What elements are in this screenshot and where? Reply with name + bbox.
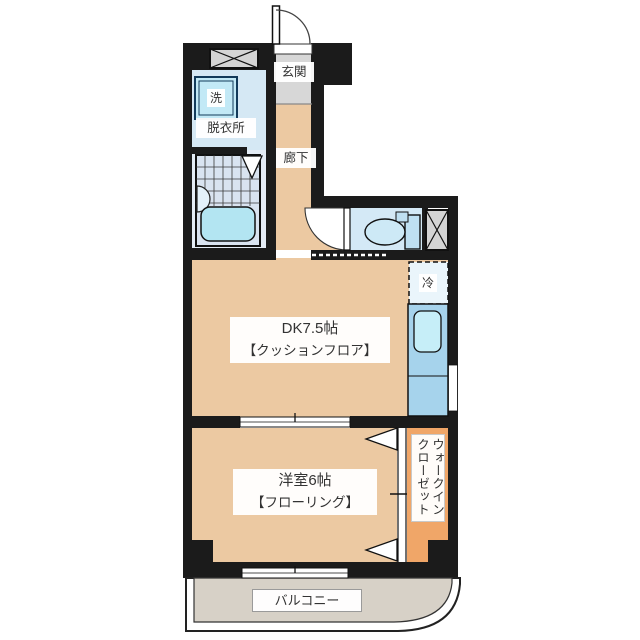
bathtub xyxy=(201,207,255,241)
dk-room-floor-note: 【クッションフロア】 xyxy=(234,340,386,362)
wall-segment xyxy=(183,147,247,154)
kitchen-sink xyxy=(414,311,441,352)
genkan-label: 玄関 xyxy=(274,62,314,82)
dk-room-name: DK7.5帖 xyxy=(234,318,386,340)
hallway-floor xyxy=(276,104,312,250)
entrance-door xyxy=(273,6,313,54)
door-swing-arc xyxy=(276,10,310,44)
dressing-room-label: 脱衣所 xyxy=(196,118,256,138)
wall-segment xyxy=(350,416,458,428)
western-room-name: 洋室6帖 xyxy=(237,470,373,492)
hallway-label: 廊下 xyxy=(276,148,316,168)
door-threshold xyxy=(274,44,312,54)
toilet-lid-box xyxy=(396,212,408,222)
toilet-bowl xyxy=(365,219,405,245)
walk-in-closet-label: ウォークインクローゼット xyxy=(411,434,445,522)
western-room-label: 洋室6帖 【フローリング】 xyxy=(233,469,377,515)
wall-segment xyxy=(428,540,450,564)
wall-segment xyxy=(311,196,458,208)
floor-plan: 洗 脱衣所 玄関 廊下 冷 DK7.5帖 【クッションフロア】 洋室6帖 【フロ… xyxy=(0,0,640,640)
wall-segment xyxy=(183,248,276,260)
bathroom-unit xyxy=(196,155,262,246)
wall-segment xyxy=(183,416,240,428)
western-room-floor-note: 【フローリング】 xyxy=(237,492,373,514)
toilet-door-leaf xyxy=(344,208,350,250)
washer-label: 洗 xyxy=(207,89,225,107)
kitchen-window xyxy=(449,365,458,411)
wall-segment xyxy=(183,43,192,578)
balcony-label: バルコニー xyxy=(252,589,362,612)
dk-room-label: DK7.5帖 【クッションフロア】 xyxy=(230,317,390,363)
door-leaf xyxy=(273,6,280,44)
fridge-label: 冷 xyxy=(419,274,437,292)
